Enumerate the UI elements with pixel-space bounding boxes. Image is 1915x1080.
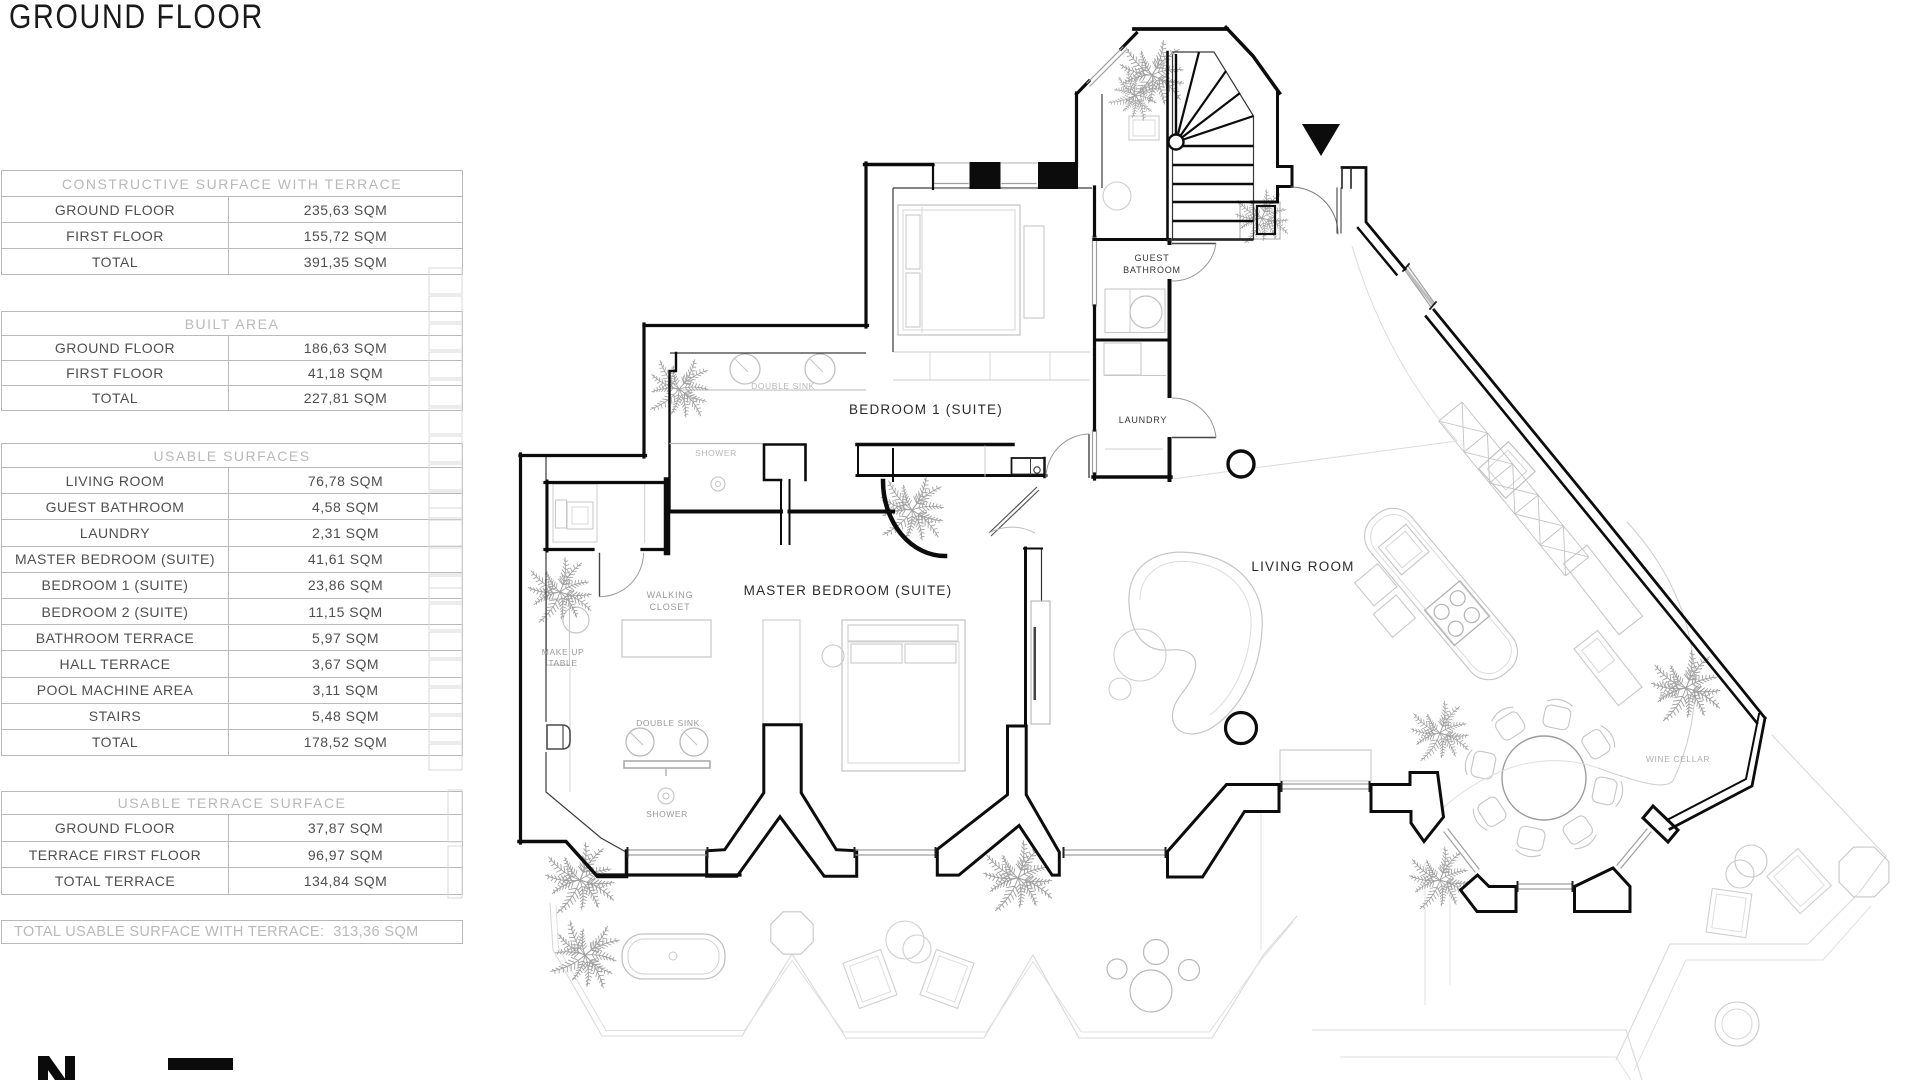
- svg-text:DOUBLE SINK: DOUBLE SINK: [751, 381, 815, 391]
- svg-text:GUEST: GUEST: [1134, 253, 1169, 263]
- svg-text:TABLE: TABLE: [548, 658, 577, 668]
- svg-text:WINE CELLAR: WINE CELLAR: [1646, 754, 1710, 764]
- svg-text:SHOWER: SHOWER: [646, 809, 688, 819]
- svg-text:SHOWER: SHOWER: [695, 448, 737, 458]
- svg-text:LAUNDRY: LAUNDRY: [1119, 415, 1167, 425]
- svg-text:WALKING: WALKING: [647, 590, 694, 600]
- svg-text:DOUBLE SINK: DOUBLE SINK: [636, 718, 700, 728]
- svg-text:MASTER BEDROOM (SUITE): MASTER BEDROOM (SUITE): [744, 583, 953, 598]
- svg-text:BAR: BAR: [1660, 691, 1678, 700]
- svg-text:LIVING ROOM: LIVING ROOM: [1251, 559, 1354, 574]
- svg-text:CLOSET: CLOSET: [650, 602, 691, 612]
- svg-text:BEDROOM 1 (SUITE): BEDROOM 1 (SUITE): [849, 402, 1003, 417]
- svg-text:BATHROOM: BATHROOM: [1123, 265, 1181, 275]
- svg-text:MAKE UP: MAKE UP: [542, 647, 584, 657]
- svg-text:WET: WET: [1659, 680, 1679, 689]
